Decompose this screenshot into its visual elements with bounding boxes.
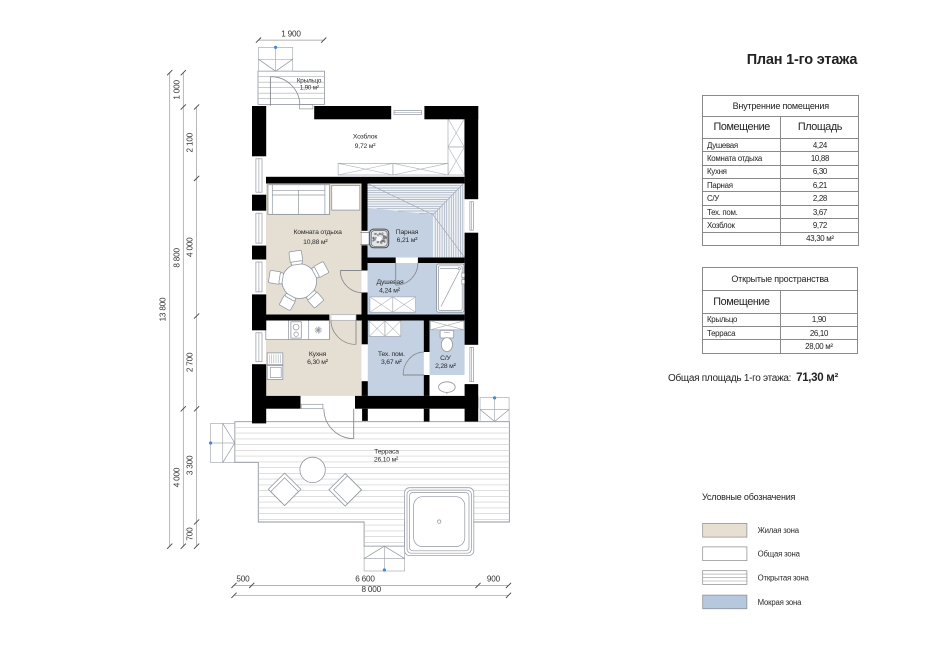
svg-text:Общая зона: Общая зона — [758, 550, 801, 559]
svg-text:Открытая зона: Открытая зона — [758, 573, 810, 582]
svg-text:Мокрая зона: Мокрая зона — [758, 598, 803, 607]
svg-text:Жилая зона: Жилая зона — [758, 526, 800, 535]
